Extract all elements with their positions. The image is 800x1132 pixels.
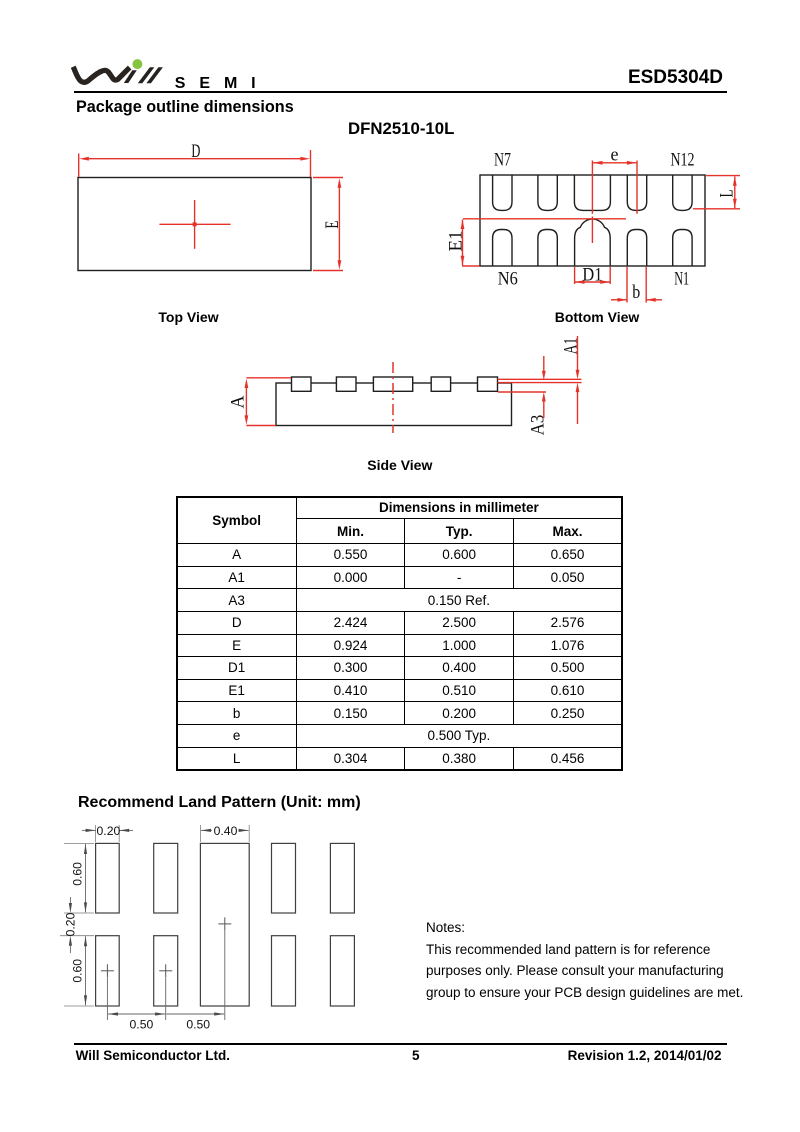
svg-text:0.60: 0.60: [70, 959, 84, 983]
svg-text:0.40: 0.40: [214, 824, 238, 838]
svg-text:0.50: 0.50: [186, 1018, 210, 1032]
svg-text:0.20: 0.20: [63, 912, 77, 936]
svg-text:0.60: 0.60: [70, 862, 84, 886]
svg-text:0.20: 0.20: [97, 824, 121, 838]
svg-text:0.50: 0.50: [130, 1018, 154, 1032]
